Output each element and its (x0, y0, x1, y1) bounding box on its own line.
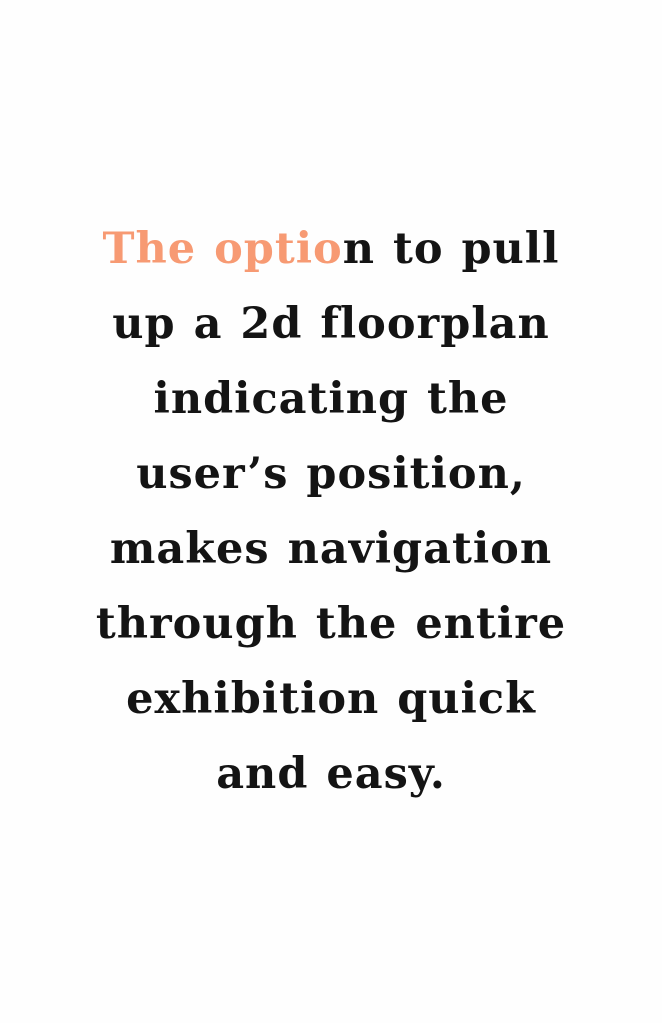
page-background: The option to pull up a 2d floorplan ind… (31, 212, 631, 812)
quote-line: exhibition quick (31, 662, 631, 737)
quote-line: user’s position, (31, 437, 631, 512)
quote-line: and easy. (31, 737, 631, 812)
quote-line: makes navigation (31, 512, 631, 587)
quote-line: up a 2d floorplan (31, 287, 631, 362)
quote-line: through the entire (31, 587, 631, 662)
quote-line-rest: n to pull (343, 224, 560, 274)
quote-text: The option to pull up a 2d floorplan ind… (31, 212, 631, 812)
quote-line: indicating the (31, 362, 631, 437)
quote-line: The option to pull (31, 212, 631, 287)
quote-highlight: The optio (103, 224, 343, 274)
